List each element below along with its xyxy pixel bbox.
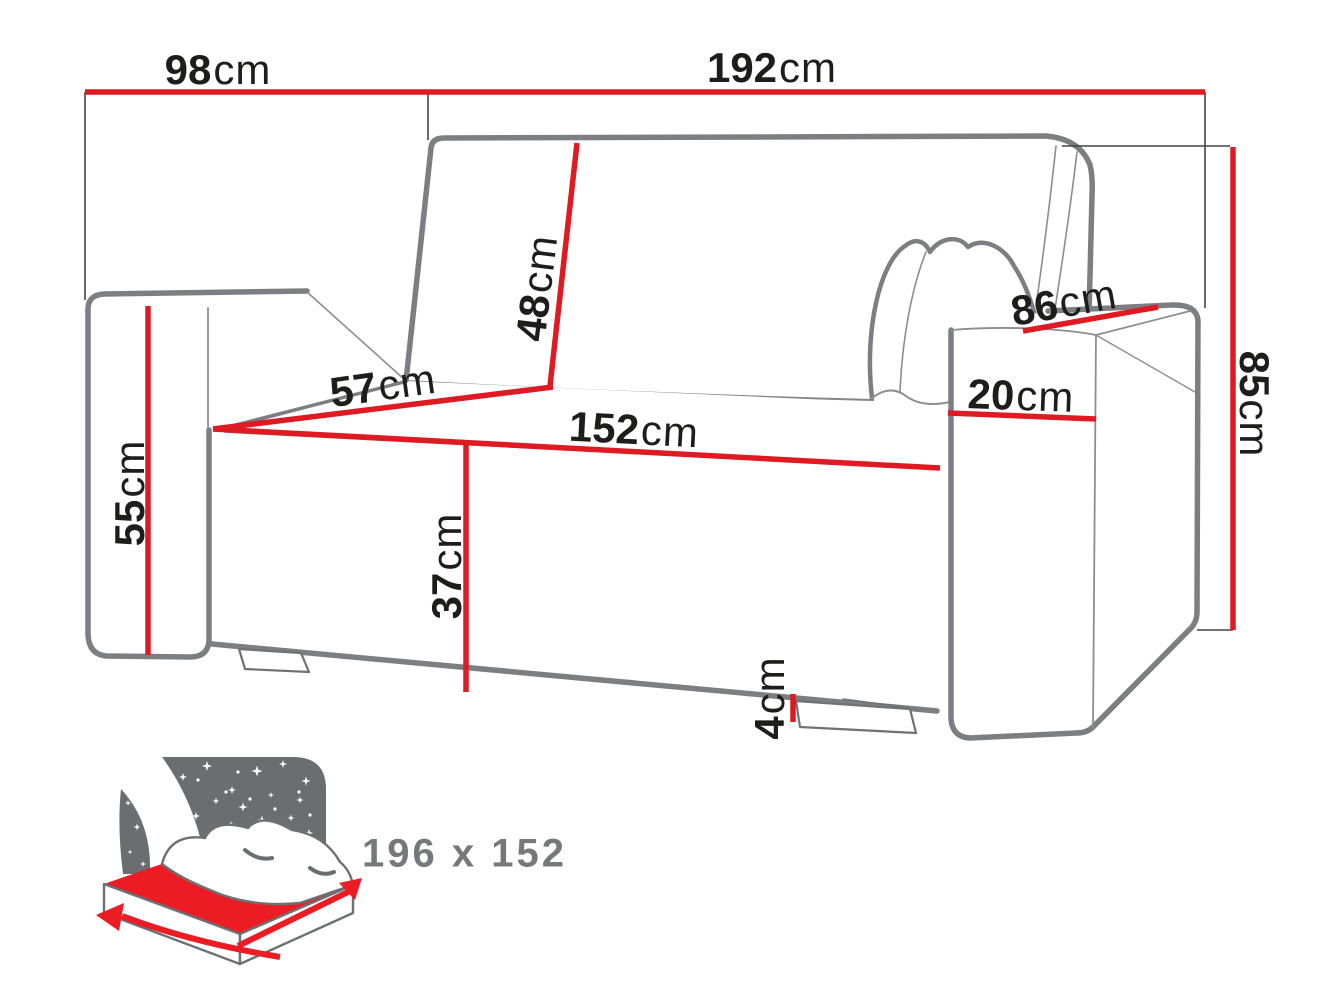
dimension-unit: cm <box>375 355 439 410</box>
dimension-label-total-width: 192cm <box>707 47 837 89</box>
dimension-unit: cm <box>513 232 567 295</box>
dimension-label-total-height: 85cm <box>1233 351 1275 458</box>
dimension-unit: cm <box>1231 399 1278 457</box>
dimension-value: 37 <box>423 573 470 620</box>
dimension-value: 98 <box>165 46 212 93</box>
dimension-value: 152 <box>568 403 640 454</box>
dimension-value: 48 <box>507 292 559 344</box>
dimension-value: 86 <box>1007 281 1061 335</box>
sofa-leg-left <box>239 649 309 672</box>
dimension-label-depth: 98cm <box>165 49 272 91</box>
dimension-unit: cm <box>746 656 793 714</box>
diagram-canvas <box>0 0 1342 1006</box>
dimension-value: 20 <box>967 370 1015 419</box>
sofa-dimension-diagram: 98cm 192cm 48cm 55cm 57cm 152cm 37cm 4cm… <box>0 0 1342 1006</box>
dimension-value: 4 <box>746 716 793 739</box>
dimension-label-clearance-height: 4cm <box>749 656 791 739</box>
dimension-value: 55 <box>106 500 153 547</box>
dimension-label-armrest-width: 20cm <box>967 373 1075 419</box>
dimension-unit: cm <box>213 46 271 93</box>
dimension-value: 85 <box>1231 351 1278 398</box>
dimension-unit: cm <box>640 406 700 456</box>
dimension-label-seat-width: 152cm <box>568 406 700 455</box>
dimension-unit: cm <box>1055 270 1120 326</box>
sleeping-area-size-label: 196 x 152 <box>362 832 567 877</box>
seat-front <box>212 431 940 712</box>
dimension-unit: cm <box>779 44 837 91</box>
sleeping-area-icon <box>96 757 362 964</box>
dimension-value: 192 <box>707 44 777 91</box>
dimension-label-seat-height: 37cm <box>426 513 468 620</box>
dimension-unit: cm <box>106 440 153 498</box>
dimension-value: 57 <box>327 363 380 416</box>
dimension-unit: cm <box>1016 372 1076 421</box>
dimension-unit: cm <box>423 513 470 571</box>
dimension-label-armrest-front-height: 55cm <box>109 440 151 547</box>
night-sky-left-shape <box>119 789 150 874</box>
